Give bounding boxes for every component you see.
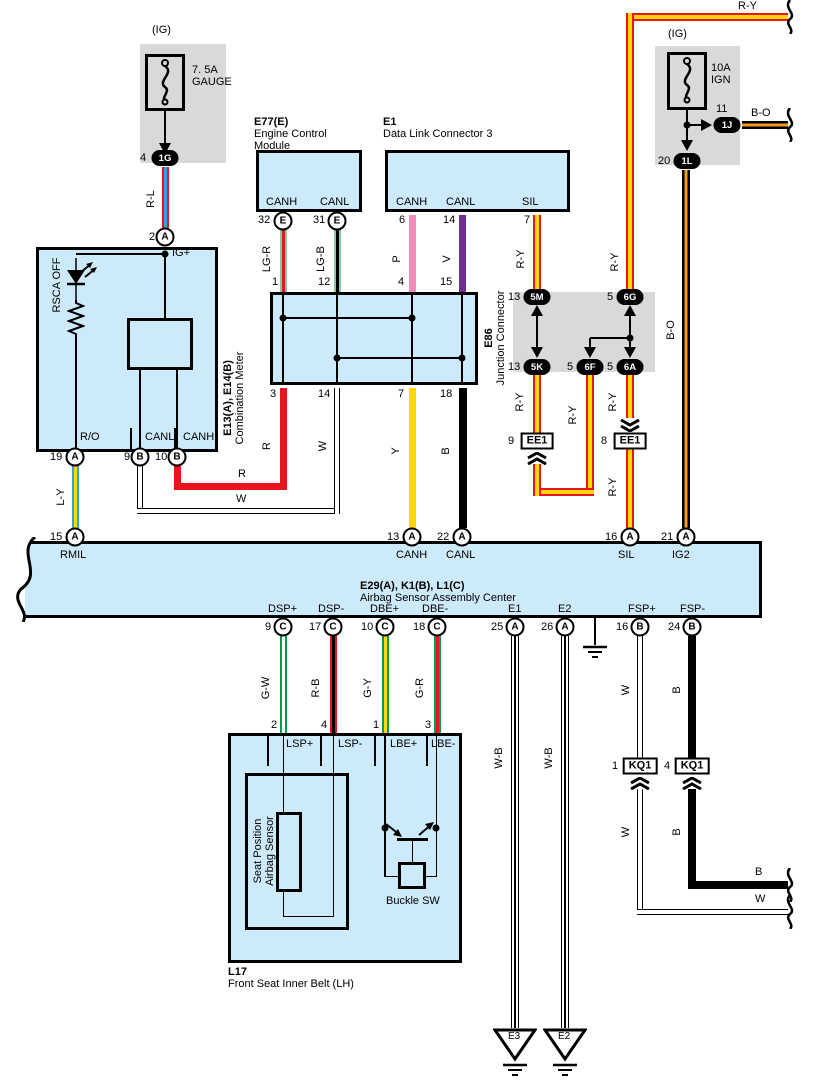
jb-link-line (536, 314, 538, 348)
ground-e2-label: E2 (558, 1031, 570, 1043)
wire-r-y-6f-v (586, 375, 594, 496)
wire-label-g-w: G-W (260, 677, 272, 700)
airbag-dsp-m-label: DSP- (318, 603, 344, 616)
wiring-diagram: (IG) 7. 5A GAUGE 1G 4 R-L (IG) 10A IGN 1… (0, 0, 816, 1087)
pin-no-e86-4: 4 (398, 276, 404, 289)
wire-label-w-bottom: W (755, 893, 765, 906)
l17-lbe-m-label: LBE- (431, 738, 455, 751)
junction-dot (684, 122, 691, 129)
seat-position-label2: Airbag Sensor (264, 816, 276, 886)
pin-no-airbag-18: 18 (413, 621, 425, 634)
pin-no-airbag-9: 9 (265, 621, 271, 634)
wire-b-o-v (682, 170, 690, 528)
wire-l-y (72, 466, 79, 528)
wire-label-w-b-2: W-B (543, 747, 555, 768)
ig-plus-node (162, 251, 169, 258)
meter-canl-label: CANL (145, 431, 174, 444)
pin-no-1g: 4 (140, 152, 146, 165)
wire-g-w (280, 636, 287, 733)
wire-label-w-b-1: W-B (493, 747, 505, 768)
chassis-ground-icon (552, 1063, 578, 1077)
wire-lg-r (280, 230, 287, 292)
seat-position-label1: Seat Position (252, 819, 264, 884)
wire-w-canl-h (137, 508, 340, 514)
sensor-element (276, 812, 302, 892)
e86-bus-canl (337, 357, 462, 359)
fuse-icon (677, 56, 697, 104)
l17-lbe-p-label: LBE+ (390, 738, 417, 751)
pin-no-kq1-1: 1 (612, 760, 618, 773)
wire-label-r-y-5k: R-Y (514, 393, 526, 412)
airbag-fsp-m-label: FSP- (680, 603, 705, 616)
jb-branch-node (627, 335, 634, 342)
wire-label-r-h: R (238, 468, 246, 481)
chassis-ground-icon (582, 645, 608, 659)
e86-box (270, 292, 478, 385)
wire-label-r-y-6f: R-Y (567, 406, 579, 425)
pin-no-5k: 13 (508, 361, 520, 374)
bus-node (409, 315, 416, 322)
ecm-canh-label: CANH (266, 196, 297, 209)
e86-bus-canh (283, 317, 412, 319)
meter-canl-line (139, 370, 141, 452)
terminal-5k: 5K (524, 359, 551, 375)
wire-label-r-y-feed: R-Y (609, 253, 621, 272)
pin-airbag-10c: C (376, 618, 395, 637)
wire-p (409, 215, 416, 292)
chevron-up-icon (526, 452, 548, 465)
ecm-canl-label: CANL (320, 196, 349, 209)
wire-label-b-bottom: B (755, 866, 762, 879)
ecm-name2: Module (254, 140, 290, 153)
buckle-sw-label: Buckle SW (386, 895, 440, 908)
wire-r-canh-h (174, 483, 287, 490)
wire-label-r-y-top: R-Y (738, 0, 757, 13)
pin-airbag-9c: C (274, 618, 293, 637)
wire-label-y: Y (390, 447, 402, 454)
wire-label-b-fsp1: B (671, 686, 683, 693)
wire-y (409, 388, 416, 528)
l17-lbe-p-line (384, 736, 386, 829)
wire-r-y-top-h (626, 13, 788, 21)
pin-meter-9b: B (131, 448, 150, 467)
wire-label-v: V (441, 255, 453, 262)
pin-airbag-22a: A (453, 528, 472, 547)
pin-no-meter-2: 2 (149, 231, 155, 244)
wire-label-r-y-sil: R-Y (515, 250, 527, 269)
pin-no-dlc3-6: 6 (399, 214, 405, 227)
pin-no-e86-3: 3 (270, 388, 276, 401)
l17-name: Front Seat Inner Belt (LH) (228, 978, 354, 991)
wire-label-b-fsp2: B (671, 828, 683, 835)
e86-col-line (282, 295, 284, 382)
wire-v (459, 215, 466, 292)
resistor-icon (67, 300, 85, 338)
l17-sensor-out-line (283, 892, 285, 917)
e86-name: Junction Connector (495, 291, 507, 386)
chevron-up-icon (629, 777, 651, 790)
wire-w-fsp-v1 (637, 636, 643, 758)
meter-id: E13(A), E14(B) (222, 360, 234, 436)
pin-no-ee1-9: 9 (508, 435, 514, 448)
meter-ro-line (75, 338, 77, 452)
wire-w-canl-v1 (137, 466, 143, 514)
wire-label-b: B (440, 447, 452, 454)
terminal-1g: 1G (152, 150, 179, 166)
wire-label-r-y-sil2: R-Y (607, 478, 619, 497)
wire-label-p: P (391, 255, 403, 262)
terminal-6a: 6A (617, 359, 644, 375)
l17-lsp-m-label: LSP- (338, 738, 362, 751)
fuse-ign-name: IGN (711, 74, 731, 87)
rsca-off-label: RSCA OFF (51, 257, 63, 312)
pin-no-airbag-15: 15 (50, 531, 62, 544)
pin-airbag-24b: B (683, 618, 702, 637)
l17-lsp-p-line (283, 736, 285, 812)
jb-branch-line (590, 337, 630, 339)
pin-airbag-16a: A (621, 528, 640, 547)
fuse-ign-ig-label: (IG) (668, 28, 687, 41)
pin-no-l17-1: 1 (373, 719, 379, 732)
wire-b-fsp-v1 (688, 636, 696, 758)
fuse-gauge-ig-label: (IG) (152, 24, 171, 37)
pin-meter-10b: B (168, 448, 187, 467)
wire-label-w-v: W (317, 441, 329, 451)
wire-label-lg-r: LG-R (261, 246, 273, 272)
pin-no-airbag-24: 24 (668, 621, 680, 634)
airbag-dbe-m-label: DBE- (422, 603, 448, 616)
wire-label-r-l: R-L (145, 190, 157, 208)
pin-airbag-26a: A (556, 618, 575, 637)
arrow-down-icon (584, 347, 596, 358)
l17-lsp-p-label: LSP+ (286, 738, 313, 751)
buckle-transistor-icon (381, 820, 439, 842)
e86-col-line (461, 295, 463, 382)
arrow-down-icon (681, 140, 693, 151)
pin-airbag-21a: A (677, 528, 696, 547)
wire-label-r-v: R (261, 442, 273, 450)
wire-r-l (162, 167, 169, 228)
wire-label-lg-b: LG-B (315, 246, 327, 272)
airbag-sil-label: SIL (618, 549, 635, 562)
wire-b-fsp-h (688, 881, 788, 889)
fuse-gauge-lead (164, 111, 166, 145)
pin-no-ecm-31: 31 (313, 214, 325, 227)
pin-meter-2a: A (156, 228, 175, 247)
dlc3-name: Data Link Connector 3 (383, 128, 492, 141)
pin-no-meter-10: 10 (155, 451, 167, 464)
wire-g-y (382, 636, 389, 733)
dlc3-canh-label: CANH (396, 196, 427, 209)
wire-w-b-e1 (511, 636, 519, 1028)
airbag-canl-label: CANL (446, 549, 475, 562)
wire-r-y-u-h (533, 488, 594, 496)
chevron-down-icon (619, 419, 641, 432)
l17-divider (267, 736, 269, 766)
terminal-6f: 6F (577, 359, 604, 375)
l17-lsp-m-line (333, 736, 335, 917)
pin-no-dlc3-7: 7 (524, 214, 530, 227)
pin-no-1l: 20 (658, 155, 670, 168)
chassis-ground-icon (502, 1063, 528, 1077)
meter-divider (130, 428, 132, 452)
wire-label-w-fsp2: W (620, 827, 632, 837)
wire-label-w-fsp1: W (620, 685, 632, 695)
wire-r-y-5k (533, 375, 541, 433)
chevron-up-icon (681, 777, 703, 790)
airbag-fsp-p-label: FSP+ (628, 603, 656, 616)
meter-canh-label: CANH (183, 431, 214, 444)
pin-airbag-17c: C (324, 618, 343, 637)
arrow-down-icon (531, 347, 543, 358)
dlc3-sil-label: SIL (522, 196, 539, 209)
pin-no-l17-2: 2 (271, 719, 277, 732)
e86-id: E86 (483, 328, 495, 348)
wire-break-icon (783, 0, 797, 34)
buckle-link-right-h (426, 876, 437, 878)
pin-no-airbag-16b: 16 (616, 621, 628, 634)
meter-internal-module (127, 318, 193, 370)
pin-no-airbag-16: 16 (605, 531, 617, 544)
wire-w-canl-v2 (334, 388, 340, 514)
pin-no-airbag-10: 10 (361, 621, 373, 634)
l17-divider (426, 736, 428, 766)
airbag-dsp-p-label: DSP+ (268, 603, 297, 616)
airbag-rmil-label: RMIL (60, 549, 86, 562)
wire-w-fsp-v2 (637, 789, 643, 915)
pin-meter-19a: A (66, 448, 85, 467)
wire-break-icon (783, 895, 797, 929)
wire-r-y-sil (533, 215, 541, 289)
pin-no-airbag-26: 26 (541, 621, 553, 634)
connector-kq1-left: KQ1 (623, 758, 658, 775)
terminal-5m: 5M (524, 289, 551, 305)
pin-no-e86-1: 1 (272, 276, 278, 289)
wire-b-canl (459, 388, 467, 528)
pin-no-airbag-21: 21 (661, 531, 673, 544)
jb-link-line (629, 314, 631, 348)
wire-label-g-y: G-Y (362, 678, 374, 698)
arrow-down-icon (624, 347, 636, 358)
wire-label-b-o-h: B-O (751, 107, 771, 120)
wire-lg-b (334, 230, 341, 292)
pin-no-6f: 5 (567, 361, 573, 374)
arrow-up-icon (531, 305, 543, 316)
wire-r-y-6a (626, 375, 634, 418)
airbag-ground-lead (594, 618, 596, 645)
pin-no-ee1-8: 8 (601, 435, 607, 448)
e86-col-line (411, 295, 413, 382)
bus-node (280, 315, 287, 322)
wire-w-b-e2 (561, 636, 569, 1028)
pin-no-airbag-17: 17 (309, 621, 321, 634)
arrow-up-icon (624, 305, 636, 316)
wire-r-y-u-v (533, 464, 541, 496)
buckle-link-left-h (384, 876, 398, 878)
airbag-canh-label: CANH (396, 549, 427, 562)
connector-ee1-left: EE1 (521, 433, 554, 450)
pin-no-l17-3: 3 (425, 719, 431, 732)
fuse-icon (155, 58, 175, 106)
connector-kq1-right: KQ1 (675, 758, 710, 775)
pin-ecm-32e: E (274, 212, 293, 231)
pin-no-1j: 11 (716, 103, 727, 116)
pin-no-e86-15: 15 (440, 276, 452, 289)
connector-ee1-right: EE1 (614, 433, 647, 450)
pin-no-l17-4: 4 (321, 719, 327, 732)
pin-no-kq1-4: 4 (664, 760, 670, 773)
pin-airbag-25a: A (506, 618, 525, 637)
wire-label-r-b: R-B (310, 679, 322, 698)
fuse-gauge-name: GAUGE (192, 76, 232, 89)
terminal-1l: 1L (674, 153, 701, 169)
pin-no-6g: 5 (607, 291, 613, 304)
airbag-ig2-label: IG2 (672, 549, 690, 562)
pin-no-dlc3-14: 14 (443, 214, 455, 227)
wire-label-l-y: L-Y (55, 488, 67, 505)
meter-branch-line (76, 253, 165, 255)
pin-no-meter-19: 19 (50, 451, 62, 464)
buckle-sw-box (398, 862, 426, 889)
pin-no-6a: 5 (607, 361, 613, 374)
ig-plus-label: IG+ (172, 247, 190, 260)
pin-airbag-16b: B (631, 618, 650, 637)
meter-canh-line (176, 370, 178, 452)
led-icon (64, 258, 100, 300)
airbag-box-break-edge (8, 537, 42, 622)
wire-r-y-feed-v (626, 13, 634, 289)
meter-ro-label: R/O (80, 431, 100, 444)
airbag-e1-label: E1 (508, 603, 521, 616)
dlc3-canl-label: CANL (446, 196, 475, 209)
pin-ecm-31e: E (328, 212, 347, 231)
airbag-e2-label: E2 (558, 603, 571, 616)
wire-label-r-y-6a: R-Y (607, 393, 619, 412)
pin-no-5m: 13 (508, 291, 520, 304)
arrow-right-icon (701, 119, 712, 131)
pin-no-airbag-25: 25 (491, 621, 503, 634)
wire-label-g-r: G-R (414, 678, 426, 698)
pin-airbag-18c: C (428, 618, 447, 637)
wire-r-y-to-sil (626, 449, 634, 528)
pin-no-meter-9: 9 (124, 451, 130, 464)
wire-b-o-h (742, 121, 788, 129)
l17-divider (320, 736, 322, 766)
meter-ig-line (164, 254, 166, 318)
bus-node (459, 355, 466, 362)
wire-r-b (330, 636, 337, 733)
terminal-1j: 1J (714, 117, 741, 133)
wire-b-fsp-v2 (688, 789, 696, 889)
pin-no-airbag-22: 22 (437, 531, 449, 544)
pin-no-e86-18: 18 (440, 388, 452, 401)
pin-no-ecm-32: 32 (258, 214, 270, 227)
pin-no-airbag-13: 13 (387, 531, 399, 544)
wire-label-b-o-v: B-O (665, 320, 677, 340)
terminal-6g: 6G (617, 289, 644, 305)
wire-r-canh-v2 (280, 388, 287, 490)
airbag-dbe-p-label: DBE+ (370, 603, 399, 616)
meter-name: Combination Meter (234, 352, 246, 445)
e86-col-line (336, 295, 338, 382)
bus-node (334, 355, 341, 362)
l17-divider (374, 736, 376, 766)
ground-e3-label: E3 (508, 1031, 520, 1043)
wire-g-r (434, 636, 441, 733)
pin-no-e86-7: 7 (398, 388, 404, 401)
wire-label-w-h: W (236, 493, 246, 506)
pin-no-e86-12: 12 (318, 276, 330, 289)
wire-w-fsp-h (637, 909, 788, 915)
pin-airbag-13a: A (403, 528, 422, 547)
pin-airbag-15a: A (66, 528, 85, 547)
pin-no-e86-14: 14 (318, 388, 330, 401)
wire-break-icon (783, 108, 797, 142)
buckle-stem (412, 841, 414, 862)
l17-sensor-bottom-line (283, 916, 335, 918)
